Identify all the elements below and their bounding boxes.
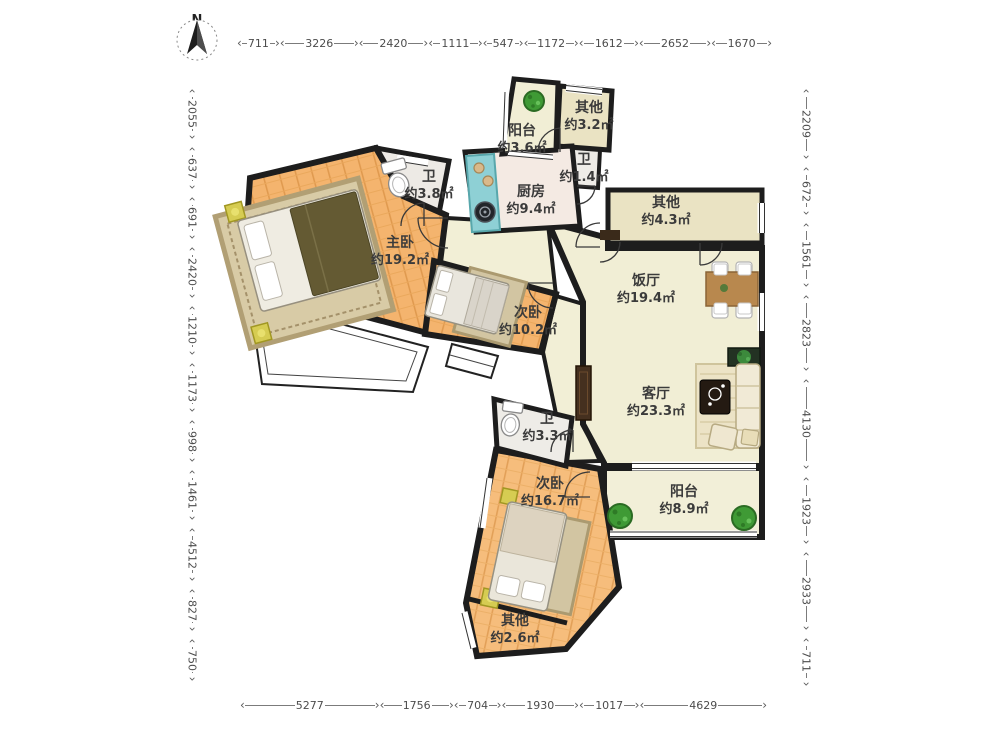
dimension-value: 711 <box>801 650 812 673</box>
dimension-segment: ‹711› <box>237 37 280 49</box>
dimension-segment: ‹1111› <box>428 37 482 49</box>
dimension-segment: ‹827› <box>187 585 198 635</box>
room-label-balcony-right: 阳台 约8.9㎡ <box>659 484 708 518</box>
dimension-chain-right: ‹2209›‹672›‹1561›‹2823›‹4130›‹1923›‹2933… <box>799 85 813 690</box>
dimension-value: 691 <box>187 206 198 229</box>
dimension-segment: ‹5277› <box>240 699 380 711</box>
dimension-value: 637 <box>187 157 198 180</box>
dimension-segment: ‹672› <box>801 163 812 219</box>
room-label-balcony-top: 阳台 约3.6㎡ <box>497 123 546 157</box>
kitchen-counter-icon <box>466 154 500 232</box>
dimension-value: 1461 <box>187 480 198 510</box>
dimension-segment: ‹1930› <box>501 699 578 711</box>
room-label-other-bottom: 其他 约2.6㎡ <box>490 613 539 647</box>
window-other-right <box>760 203 765 233</box>
dimension-value: 1930 <box>525 700 555 711</box>
dimension-segment: ‹2652› <box>639 37 711 49</box>
plant-icon-balcony-left <box>608 504 632 528</box>
dimension-segment: ‹2823› <box>801 291 812 375</box>
room-label-master: 主卧 约19.2㎡ <box>371 235 429 269</box>
dimension-value: 1670 <box>727 38 757 49</box>
window-living-balcony <box>632 464 756 469</box>
dimension-chain-top: ‹711›‹3226›‹2420›‹1111›‹547›‹1172›‹1612›… <box>237 36 772 50</box>
dimension-value: 1111 <box>440 38 470 49</box>
room-label-bath-mid: 卫 约3.3㎡ <box>522 411 571 445</box>
stove-icon <box>475 202 495 222</box>
dimension-segment: ‹691› <box>187 193 198 243</box>
dimension-value: 5277 <box>295 700 325 711</box>
tv-cabinet-icon <box>576 366 591 420</box>
room-label-bedroom3: 次卧 约16.7㎡ <box>521 476 579 510</box>
dimension-value: 3226 <box>304 38 334 49</box>
dimension-value: 1923 <box>801 496 812 526</box>
plant-icon-balcony-right <box>732 506 756 530</box>
dimension-value: 2823 <box>801 318 812 348</box>
dimension-segment: ‹1210› <box>187 302 198 359</box>
dimension-segment: ‹2420› <box>359 37 429 49</box>
compass-icon: N <box>174 14 220 76</box>
room-label-other-top: 其他 约3.2㎡ <box>564 100 613 134</box>
dimension-segment: ‹1461› <box>187 466 198 524</box>
dimension-value: 1017 <box>594 700 624 711</box>
dimension-value: 827 <box>187 599 198 622</box>
dimension-value: 2055 <box>187 99 198 129</box>
dimension-segment: ‹1756› <box>380 699 454 711</box>
dimension-segment: ‹637› <box>187 143 198 193</box>
dimension-segment: ‹1612› <box>579 37 639 49</box>
dimension-segment: ‹1173› <box>187 359 198 416</box>
dimension-segment: ‹750› <box>187 635 198 685</box>
dimension-segment: ‹1923› <box>801 473 812 548</box>
plant-icon-balcony-top <box>524 91 544 111</box>
dimension-segment: ‹1561› <box>801 219 812 291</box>
dimension-value: 711 <box>247 38 270 49</box>
dimension-value: 1210 <box>187 315 198 345</box>
dimension-segment: ‹1172› <box>524 37 579 49</box>
dimension-segment: ‹4629› <box>639 699 767 711</box>
dimension-value: 998 <box>187 430 198 453</box>
dimension-value: 4629 <box>688 700 718 711</box>
dimension-value: 4512 <box>187 540 198 570</box>
room-label-dining: 饭厅 约19.4㎡ <box>617 273 675 307</box>
room-label-bedroom2: 次卧 约10.2㎡ <box>499 305 557 339</box>
dimension-segment: ‹547› <box>483 37 524 49</box>
dimension-segment: ‹3226› <box>280 37 359 49</box>
dimension-segment: ‹4130› <box>801 375 812 473</box>
dimension-value: 1756 <box>402 700 432 711</box>
room-label-bath-left: 卫 约3.8㎡ <box>404 169 453 203</box>
dimension-chain-left: ‹2055›‹637›‹691›‹2420›‹1210›‹1173›‹998›‹… <box>185 85 199 685</box>
bay-window-bedroom2 <box>446 344 498 378</box>
dimension-segment: ‹998› <box>187 416 198 466</box>
window-dining-right <box>760 293 765 331</box>
dimension-value: 1173 <box>187 373 198 403</box>
dimension-segment: ‹2933› <box>801 548 812 634</box>
coffee-table-icon <box>700 380 730 414</box>
dimension-value: 1172 <box>536 38 566 49</box>
living-room-set <box>696 348 760 450</box>
dimension-value: 2652 <box>660 38 690 49</box>
dimension-value: 1612 <box>594 38 624 49</box>
dimension-value: 672 <box>801 180 812 203</box>
dimension-value: 2933 <box>801 576 812 606</box>
window-balcony-right-bottom <box>610 532 757 537</box>
dimension-segment: ‹2055› <box>187 85 198 143</box>
dimension-segment: ‹1670› <box>711 37 772 49</box>
dimension-value: 1561 <box>801 240 812 270</box>
dimension-segment: ‹1017› <box>579 699 640 711</box>
room-label-other-right: 其他 约4.3㎡ <box>641 195 690 229</box>
dimension-chain-bottom: ‹5277›‹1756›‹704›‹1930›‹1017›‹4629› <box>240 698 767 712</box>
dimension-value: 2420 <box>378 38 408 49</box>
compass-rose <box>174 14 220 62</box>
dimension-value: 4130 <box>801 409 812 439</box>
room-label-living: 客厅 约23.3㎡ <box>627 386 685 420</box>
floor-plan-page: N ‹711›‹3226›‹2420›‹1111›‹547›‹1172›‹161… <box>0 0 1000 750</box>
dimension-value: 750 <box>187 649 198 672</box>
dimension-segment: ‹2420› <box>187 243 198 302</box>
dimension-segment: ‹4512› <box>187 524 198 585</box>
room-label-bath-tiny: 卫 约1.4㎡ <box>559 152 608 186</box>
dimension-value: 2420 <box>187 257 198 287</box>
dimension-value: 2209 <box>801 109 812 139</box>
dimension-segment: ‹704› <box>454 699 502 711</box>
dimension-value: 547 <box>492 38 515 49</box>
dimension-value: 704 <box>466 700 489 711</box>
dimension-segment: ‹711› <box>801 634 812 690</box>
room-label-kitchen: 厨房 约9.4㎡ <box>506 184 555 218</box>
dimension-segment: ‹2209› <box>801 85 812 163</box>
